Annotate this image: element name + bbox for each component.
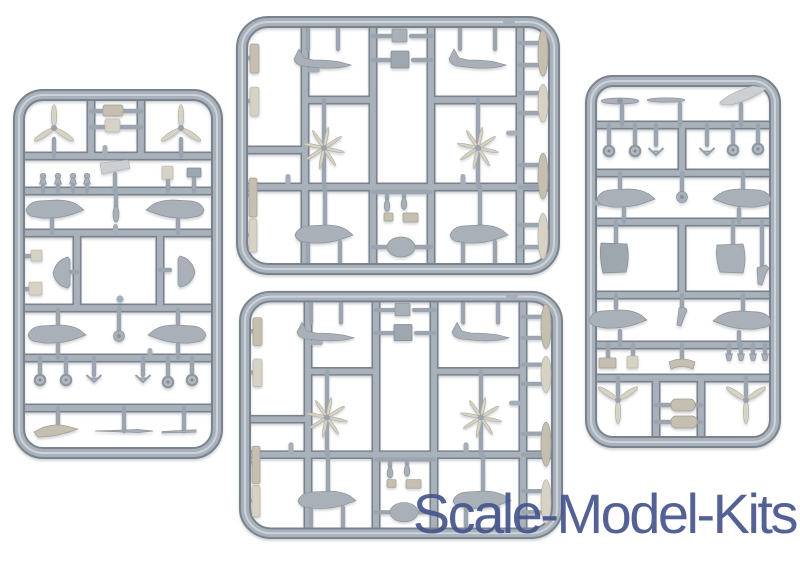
wheel-parts [34,374,199,389]
product-photo: Scale-Model-Kits [0,0,800,562]
sprue-bottom-center [245,294,557,534]
sprue-left [19,95,217,453]
pawn-pin-parts [40,173,91,184]
sprues-photo [0,0,800,562]
engine-block-parts [103,105,123,132]
float-fin-parts [29,250,195,295]
sprue-right [589,81,775,442]
sprue-top-center [242,19,554,269]
small-right-parts [162,166,201,179]
wing-strip-parts [34,425,196,437]
cowling-cylinder-parts [671,399,697,428]
